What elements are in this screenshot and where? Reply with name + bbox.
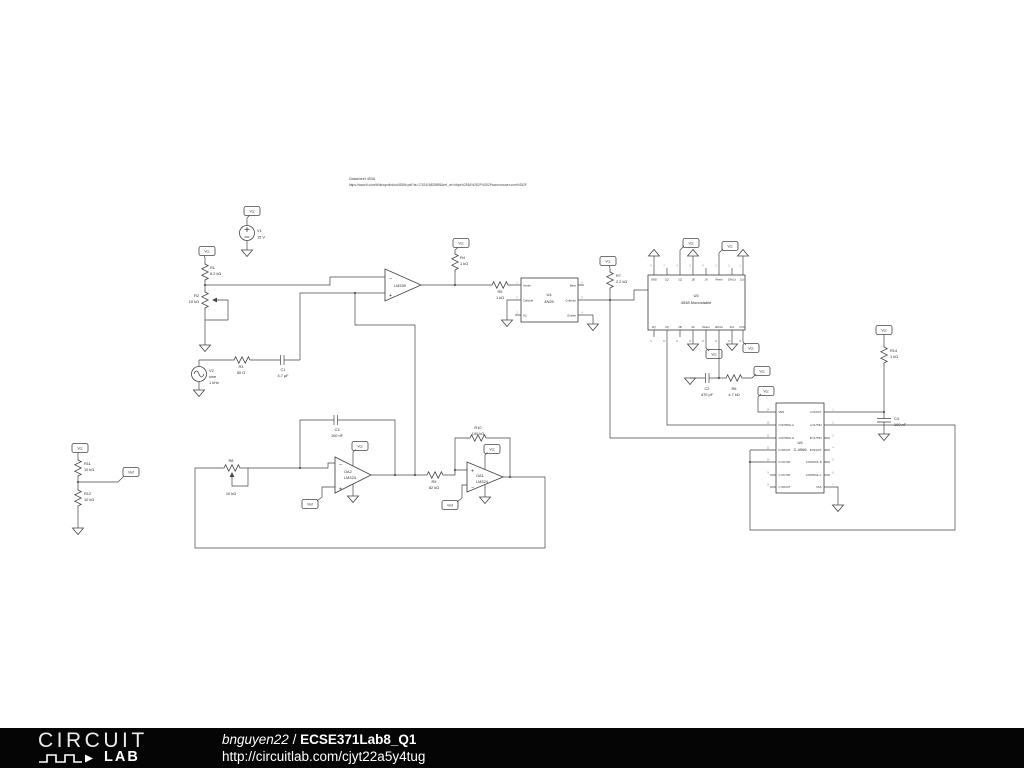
svg-text:4538 Monostable: 4538 Monostable [681, 300, 712, 305]
schematic-canvas: Datasheet 4538 https://www.ti.com/lit/ds… [0, 0, 1024, 728]
svg-text:1: 1 [516, 283, 518, 285]
svg-text:LM339: LM339 [394, 283, 406, 288]
svg-text:C1: C1 [281, 367, 286, 372]
svg-text:Vcc: Vcc [759, 369, 765, 373]
svg-text:VSS: VSS [816, 485, 822, 489]
svg-text:Vcc: Vcc [77, 446, 83, 450]
svg-text:Vcc: Vcc [688, 241, 694, 245]
svg-text:R3: R3 [239, 364, 244, 369]
svg-text:Vcc: Vcc [748, 346, 754, 350]
svg-text:2Q: 2Q [665, 325, 669, 329]
svg-text:1B: 1B [691, 278, 694, 282]
svg-text:16: 16 [739, 341, 742, 343]
svg-text:9: 9 [650, 341, 652, 343]
svg-text:R7: R7 [616, 273, 621, 278]
ground-icon [588, 324, 599, 331]
svg-text:14: 14 [715, 341, 718, 343]
wiper-arrow [212, 298, 217, 303]
svg-text:LM324: LM324 [476, 479, 489, 484]
svg-text:82 kΩ: 82 kΩ [429, 485, 439, 490]
ground-icon [502, 320, 513, 327]
svg-text:R2: R2 [194, 293, 199, 298]
svg-text:+: + [339, 487, 342, 493]
svg-text:1: 1 [832, 410, 834, 412]
svg-text:2A: 2A [691, 325, 694, 329]
svg-text:R1: R1 [210, 265, 215, 270]
svg-text:8: 8 [767, 485, 769, 487]
svg-text:Vcc: Vcc [605, 259, 611, 263]
capacitor-c2: C2 470 pF [685, 373, 720, 397]
logo-lab-text: LAB [104, 751, 140, 764]
svg-text:R10: R10 [474, 425, 482, 430]
svg-text:7: 7 [663, 266, 665, 268]
svg-text:1 kΩ: 1 kΩ [460, 261, 468, 266]
svg-text:R5: R5 [498, 289, 503, 294]
ground-icon [833, 505, 844, 512]
svg-text:100 nF: 100 nF [331, 433, 344, 438]
wiper-arrow [230, 472, 235, 477]
svg-text:−: − [471, 485, 474, 491]
svg-text:Reset: Reset [702, 325, 709, 329]
svg-text:Cathode: Cathode [523, 299, 534, 303]
svg-text:8.2 kΩ: 8.2 kΩ [210, 271, 221, 276]
svg-text:2: 2 [516, 298, 518, 300]
ground-icon [348, 496, 359, 503]
ground-icon [688, 344, 699, 351]
svg-text:1RxCx: 1RxCx [728, 278, 737, 282]
svg-text:4: 4 [832, 448, 834, 450]
footer-separator: / [289, 732, 300, 747]
svg-text:A IN/OUT: A IN/OUT [810, 410, 822, 414]
svg-text:Vcc: Vcc [204, 249, 210, 253]
svg-text:4: 4 [581, 313, 583, 315]
svg-text:Vref: Vref [307, 502, 313, 506]
ground-up-icon [688, 250, 699, 257]
svg-text:470 pF: 470 pF [701, 392, 714, 397]
ic-u6-4066: VDD CONTROL A CONTROL D D IN/OUT D OUT/I… [749, 387, 955, 531]
svg-text:10 kΩ: 10 kΩ [226, 491, 236, 496]
capacitor-c4: C4 100 nF [877, 412, 907, 441]
svg-text:Base: Base [570, 284, 577, 288]
svg-text:CONTROL C: CONTROL C [806, 473, 822, 477]
svg-text:Reset: Reset [715, 278, 722, 282]
svg-text:−: − [389, 277, 392, 283]
svg-text:9: 9 [767, 473, 769, 475]
svg-text:C OUT/IN: C OUT/IN [779, 473, 791, 477]
svg-text:R14: R14 [890, 348, 898, 353]
resistor-r1: Vcc R1 8.2 kΩ [199, 247, 221, 291]
voltage-source-v1: Vcc V1 15 V [240, 207, 266, 257]
svg-text:2: 2 [832, 423, 834, 425]
svg-text:2B: 2B [678, 325, 681, 329]
svg-text:B OUT/IN: B OUT/IN [810, 436, 822, 440]
svg-text:8: 8 [650, 266, 652, 268]
resistor-r9: R9 82 kΩ [425, 469, 467, 490]
ground-icon [194, 390, 205, 397]
svg-text:R6: R6 [732, 386, 737, 391]
ic-u5-4538: GND 1Q' 1Q 1B 1A Reset 1RxCx 1Cx 2Q' 2Q … [641, 239, 770, 426]
ground-icon [480, 497, 491, 504]
divider-r11-r12: Vcc R11 10 kΩ R12 10 kΩ Vref [72, 444, 139, 535]
opamp-oa2: − + OA2 LM324 Vcc Vref [302, 442, 425, 509]
svg-text:6: 6 [832, 473, 834, 475]
resistor-r5: R5 1 kΩ [490, 282, 510, 300]
svg-text:11: 11 [767, 448, 770, 450]
svg-text:D IN/OUT: D IN/OUT [779, 448, 791, 452]
svg-text:OA1: OA1 [476, 473, 484, 478]
svg-text:GND: GND [651, 278, 657, 282]
svg-text:CONTROL B: CONTROL B [806, 460, 822, 464]
svg-text:−: − [339, 463, 342, 469]
svg-text:LM324: LM324 [344, 475, 357, 480]
svg-text:10 kΩ: 10 kΩ [189, 299, 199, 304]
svg-text:C IN/OUT: C IN/OUT [779, 485, 791, 489]
waveform-icon [38, 752, 100, 764]
svg-text:3: 3 [832, 436, 834, 438]
svg-text:Collector: Collector [565, 299, 576, 303]
svg-text:10 kΩ: 10 kΩ [84, 467, 94, 472]
svg-text:OA2: OA2 [344, 469, 352, 474]
svg-text:5: 5 [832, 460, 834, 462]
svg-text:12: 12 [689, 341, 692, 343]
svg-text:R12: R12 [84, 491, 91, 496]
svg-text:3: 3 [715, 266, 717, 268]
ground-up-icon [649, 250, 660, 257]
note-line1: Datasheet 4538 [349, 177, 375, 181]
svg-text:4.7 µF: 4.7 µF [277, 373, 289, 378]
svg-text:100 kΩ: 100 kΩ [472, 431, 485, 436]
note-line2: https://www.ti.com/lit/ds/symlink/cd4538… [349, 183, 527, 187]
svg-text:Vcc: Vcc [727, 244, 733, 248]
svg-text:+: + [471, 469, 474, 475]
ground-icon [200, 345, 211, 352]
svg-text:Vcc: Vcc [489, 447, 495, 451]
ic-u4-4n25: Anode Cathode NC Base Collector Emitter … [502, 278, 642, 331]
svg-text:Emitter: Emitter [567, 314, 576, 318]
sine-icon [194, 371, 204, 377]
svg-text:U5: U5 [693, 293, 699, 298]
svg-text:U6: U6 [797, 440, 803, 445]
footer-title-line: bnguyen22 / ECSE371Lab8_Q1 [222, 731, 425, 748]
svg-text:1 kHz: 1 kHz [209, 380, 219, 385]
svg-text:3: 3 [516, 313, 518, 315]
svg-text:Vcc: Vcc [881, 328, 887, 332]
svg-text:13: 13 [702, 341, 705, 343]
svg-text:15: 15 [728, 341, 731, 343]
svg-text:100 nF: 100 nF [894, 422, 907, 427]
svg-text:Vcc: Vcc [458, 241, 464, 245]
svg-text:NC: NC [523, 314, 527, 318]
logo-circuit-text: CIRCUIT [38, 732, 178, 750]
svg-text:Vcc: Vcc [357, 444, 363, 448]
svg-text:V1: V1 [257, 228, 262, 233]
svg-text:C2: C2 [705, 386, 710, 391]
svg-text:sine: sine [209, 374, 216, 379]
svg-text:5: 5 [689, 266, 691, 268]
svg-text:12: 12 [767, 436, 770, 438]
svg-text:1Cx: 1Cx [740, 278, 745, 282]
ground-icon [727, 344, 738, 351]
svg-text:VDD: VDD [779, 410, 785, 414]
svg-text:D OUT/IN: D OUT/IN [779, 460, 791, 464]
svg-text:2.2 kΩ: 2.2 kΩ [616, 279, 627, 284]
opamp-oa1: + − OA1 LM324 Vcc Vref [442, 445, 503, 510]
svg-text:CONTROL A: CONTROL A [779, 423, 795, 427]
svg-text:10: 10 [663, 341, 666, 343]
svg-text:4N25: 4N25 [544, 299, 554, 304]
capacitor-c1: C1 4.7 µF [277, 293, 385, 378]
svg-text:1Q': 1Q' [665, 278, 670, 282]
svg-text:4: 4 [702, 266, 704, 268]
resistor-r14: Vcc R14 1 kΩ [876, 326, 898, 414]
svg-text:5: 5 [581, 298, 583, 300]
svg-text:2RxCx: 2RxCx [715, 325, 724, 329]
svg-text:2: 2 [728, 266, 730, 268]
svg-text:A OUT/IN: A OUT/IN [810, 423, 822, 427]
ground-up-icon [738, 250, 749, 257]
plus-sign [245, 227, 250, 232]
footer-circuit-title: ECSE371Lab8_Q1 [300, 732, 416, 747]
svg-text:C4: C4 [894, 416, 900, 421]
svg-text:2Cx: 2Cx [730, 325, 735, 329]
share-url[interactable]: http://circuitlab.com/cjyt22a5y4tug [222, 748, 425, 765]
datasheet-note: Datasheet 4538 https://www.ti.com/lit/ds… [349, 177, 527, 187]
svg-text:+: + [389, 293, 392, 299]
resistor-r4: Vcc R4 1 kΩ [452, 239, 469, 287]
footer-bar: CIRCUIT LAB bnguyen22 / ECSE371Lab8_Q1 h… [0, 728, 1024, 768]
svg-text:1: 1 [739, 266, 741, 268]
svg-text:V2: V2 [209, 368, 214, 373]
svg-text:C3: C3 [335, 427, 340, 432]
footer-username: bnguyen22 [222, 732, 289, 747]
svg-text:13: 13 [767, 423, 770, 425]
svg-text:VCC: VCC [739, 325, 745, 329]
svg-text:C-4066: C-4066 [793, 447, 807, 452]
svg-text:R8: R8 [229, 458, 234, 463]
svg-text:7: 7 [832, 485, 834, 487]
svg-text:4.7 kΩ: 4.7 kΩ [728, 392, 739, 397]
svg-text:B IN/OUT: B IN/OUT [810, 448, 822, 452]
svg-text:1Q: 1Q [678, 278, 682, 282]
svg-text:Vcc: Vcc [711, 352, 717, 356]
svg-text:Vcc: Vcc [249, 209, 255, 213]
svg-text:Vcc: Vcc [763, 389, 769, 393]
ground-icon [73, 528, 84, 535]
svg-text:11: 11 [676, 341, 679, 343]
svg-text:R9: R9 [432, 479, 437, 484]
svg-text:1 kΩ: 1 kΩ [890, 354, 898, 359]
ground-icon [879, 434, 890, 441]
svg-text:Vref: Vref [447, 503, 453, 507]
svg-text:U4: U4 [546, 292, 552, 297]
voltage-source-v2: V2 sine 1 kHz [192, 360, 219, 397]
svg-text:10 kΩ: 10 kΩ [84, 497, 94, 502]
potentiometer-r8: R8 10 kΩ [222, 458, 248, 496]
svg-text:14: 14 [767, 410, 770, 412]
svg-text:Vref: Vref [128, 470, 134, 474]
svg-text:2Q': 2Q' [652, 325, 657, 329]
potentiometer-r2: R2 10 kΩ [189, 290, 228, 352]
ground-icon [685, 378, 696, 385]
circuitlab-logo[interactable]: CIRCUIT LAB [38, 732, 178, 764]
svg-text:R4: R4 [460, 255, 466, 260]
circuitlab-share-page: Datasheet 4538 https://www.ti.com/lit/ds… [0, 0, 1024, 768]
svg-text:50 Ω: 50 Ω [237, 370, 245, 375]
ground-icon [242, 250, 253, 257]
svg-text:R11: R11 [84, 461, 91, 466]
svg-text:15 V: 15 V [257, 235, 265, 240]
svg-text:CONTROL D: CONTROL D [779, 436, 795, 440]
svg-text:6: 6 [676, 266, 678, 268]
svg-text:6: 6 [581, 283, 583, 285]
svg-text:1 kΩ: 1 kΩ [496, 295, 504, 300]
svg-text:1A: 1A [704, 278, 707, 282]
svg-text:Anode: Anode [523, 284, 531, 288]
svg-text:10: 10 [767, 460, 770, 462]
